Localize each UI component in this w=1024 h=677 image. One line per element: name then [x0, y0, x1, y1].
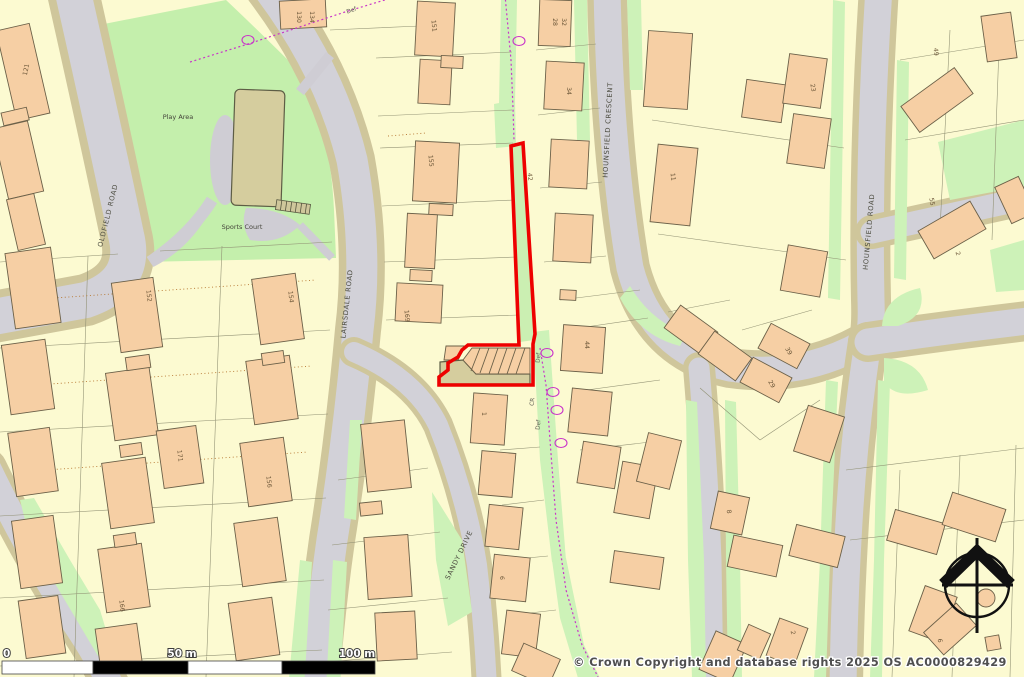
building: [125, 354, 151, 370]
scale-segment: [282, 661, 375, 674]
building: [643, 31, 692, 110]
house-number-label: 151: [429, 20, 437, 32]
building: [780, 245, 827, 297]
building: [410, 269, 433, 281]
building: [1, 339, 54, 414]
building: [610, 551, 664, 590]
scale-segment: [188, 661, 282, 674]
building: [359, 501, 382, 516]
building: [102, 457, 155, 528]
building: [553, 213, 593, 263]
building: [470, 393, 507, 445]
sports-court: [231, 89, 285, 207]
building: [560, 325, 605, 374]
house-number-label: 130: [295, 11, 302, 23]
building: [783, 54, 828, 109]
house-number-label: 169: [402, 310, 410, 322]
house-number-label: 55: [927, 197, 935, 206]
house-number-label: 23: [808, 83, 816, 92]
scale-label-zero: 0: [3, 648, 10, 660]
house-number-label: 49: [932, 48, 940, 57]
building: [240, 437, 292, 507]
building: [568, 388, 612, 436]
building: [650, 144, 698, 226]
boundary-annotation: Def: [536, 352, 543, 364]
building: [429, 203, 454, 215]
building: [441, 55, 464, 68]
house-number-label: 134: [308, 11, 315, 23]
house-number-label: 155: [426, 155, 434, 167]
house-number-label: 44: [583, 341, 590, 349]
house-number-label: 1: [480, 412, 487, 416]
house-number-label: 154: [286, 291, 294, 304]
house-number-label: 28: [551, 18, 558, 26]
copyright-attribution: © Crown Copyright and database rights 20…: [573, 656, 1007, 669]
house-number-label: 6: [498, 576, 505, 580]
building: [252, 273, 305, 344]
verge: [494, 100, 516, 148]
building: [405, 213, 438, 268]
building: [490, 554, 530, 602]
building: [478, 451, 516, 498]
house-number-label: 166: [117, 600, 125, 613]
building: [549, 139, 589, 189]
building: [279, 0, 326, 29]
building: [742, 79, 787, 122]
building: [395, 283, 443, 323]
building: [981, 12, 1017, 62]
boundary-annotation: Def: [536, 419, 543, 431]
building: [18, 595, 66, 658]
road-surface: [868, 0, 879, 342]
building: [5, 247, 61, 329]
building: [485, 504, 523, 549]
building: [228, 597, 280, 661]
building: [246, 355, 298, 425]
house-number-label: 171: [175, 450, 183, 463]
building: [261, 351, 284, 366]
building: [985, 635, 1001, 651]
boundary-annotation: CR: [530, 398, 537, 407]
building: [544, 61, 584, 111]
area-label: Play Area: [163, 113, 194, 121]
building: [361, 420, 412, 492]
building: [119, 443, 142, 458]
building: [787, 114, 832, 169]
building: [8, 427, 58, 496]
road-hounsfield-north: [868, 0, 879, 342]
house-number-label: 156: [264, 476, 272, 489]
building: [977, 589, 995, 607]
scale-label-hundred: 100 m: [339, 648, 376, 660]
building: [412, 141, 459, 203]
building: [375, 611, 417, 661]
house-number-label: 152: [144, 290, 152, 303]
building: [560, 290, 577, 301]
scale-segment: [2, 661, 93, 674]
building: [113, 533, 136, 548]
building: [577, 441, 621, 488]
building: [364, 535, 412, 600]
house-number-label: 34: [565, 87, 572, 95]
road-hounsfield-south: [843, 342, 868, 677]
scale-segment: [93, 661, 188, 674]
map-viewport[interactable]: OLDFIELD ROADLAIRSDALE ROADHOUNSFIELD CR…: [0, 0, 1024, 677]
house-number-label: 11: [669, 173, 677, 182]
area-label: Sports Court: [222, 223, 263, 231]
building: [105, 367, 158, 440]
building: [11, 515, 62, 588]
scale-label-fifty: 50 m: [167, 648, 196, 660]
house-number-label: 42: [526, 173, 534, 182]
house-number-label: 32: [560, 18, 567, 26]
building: [234, 517, 286, 587]
